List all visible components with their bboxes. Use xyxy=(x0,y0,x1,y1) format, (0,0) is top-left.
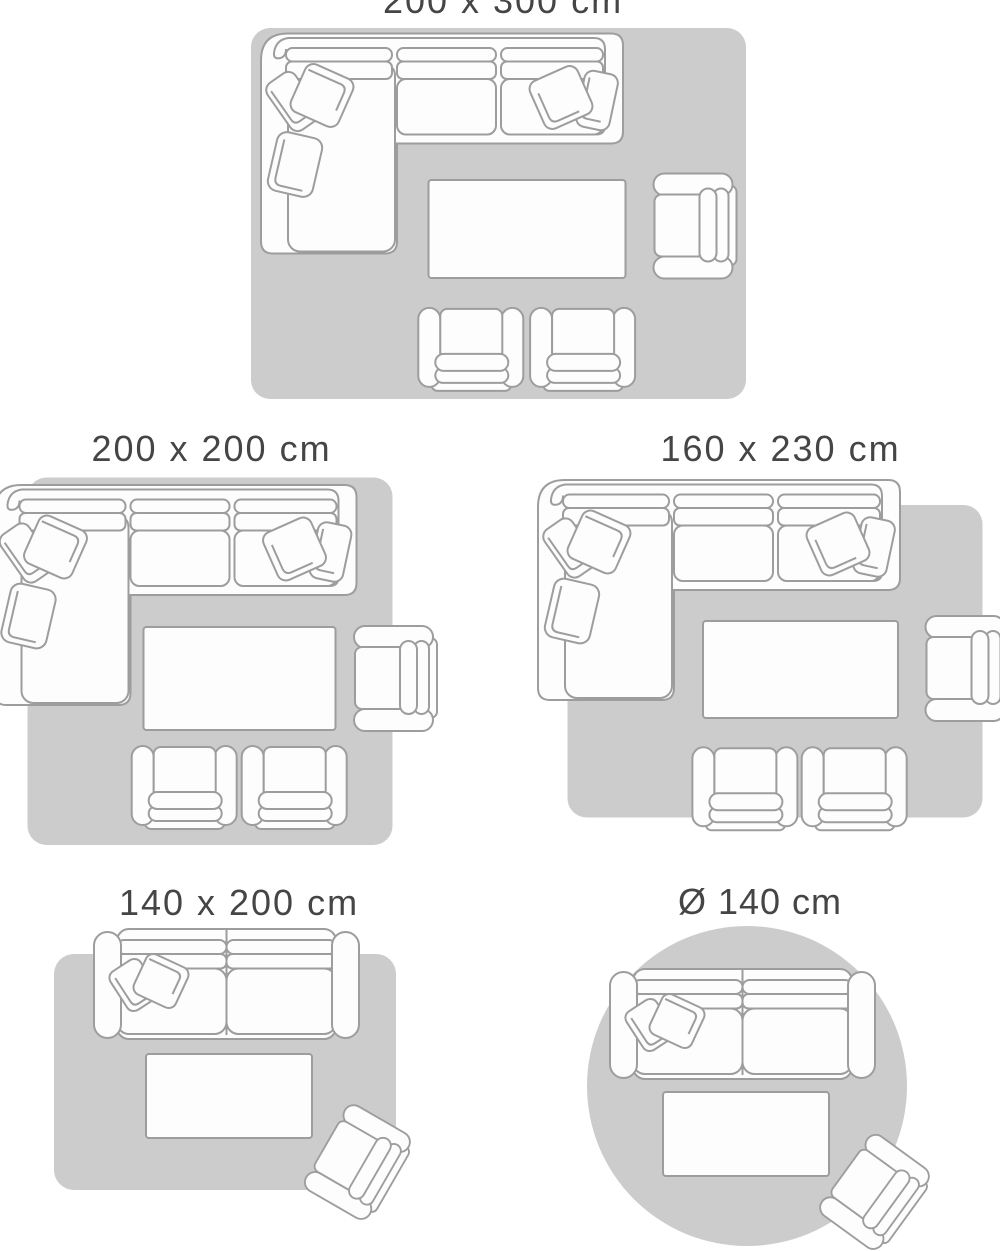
svg-text:200 x 200 cm: 200 x 200 cm xyxy=(91,428,331,469)
svg-text:160 x 230 cm: 160 x 230 cm xyxy=(660,428,900,469)
svg-text:200 x 300 cm: 200 x 300 cm xyxy=(383,0,623,21)
svg-text:Ø 140 cm: Ø 140 cm xyxy=(678,881,842,922)
svg-text:140 x 200 cm: 140 x 200 cm xyxy=(119,882,359,923)
